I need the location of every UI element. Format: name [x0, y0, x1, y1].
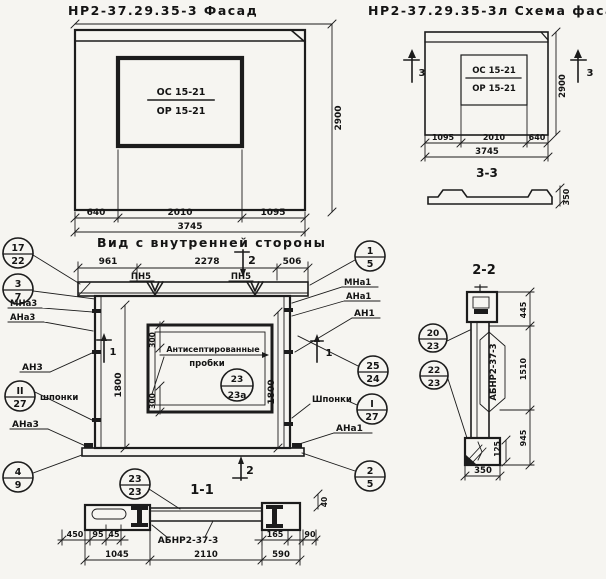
window-mark-top: ОС 15-21 [472, 66, 516, 76]
drawing-sheet: НР2-37.29.35-3 Фасад ОС 15-21 ОР 15-21 6… [0, 0, 606, 579]
callout-bottom: 24 [366, 374, 380, 385]
dim-label: 1800 [114, 372, 124, 397]
loop-label-right: ПН5 [231, 272, 251, 282]
callout-bottom: 22 [11, 256, 24, 267]
dim-label: 3745 [475, 147, 499, 157]
callout-bottom: 27 [13, 399, 26, 410]
callout-bottom: 23 [427, 342, 440, 352]
dim-label: 1510 [519, 357, 528, 380]
dim-label: 2110 [194, 550, 218, 560]
dim-label: 450 [67, 530, 84, 539]
callout-top: 17 [11, 243, 24, 254]
panel-body-outline [95, 296, 290, 448]
section-3-3-profile [428, 190, 552, 204]
section-mark-1-left: 1 [110, 347, 117, 358]
dim-label: 1800 [267, 379, 277, 404]
callout-bottom: 23 [428, 379, 441, 389]
anchor-label-an3: АН3 [22, 363, 43, 373]
inner-view-title: Вид с внутренней стороны [97, 235, 326, 250]
callout-top: I [370, 399, 374, 410]
callout-top: 1 [367, 246, 374, 257]
dim-label: 2900 [558, 74, 568, 98]
section-mark-2-top: 2 [248, 254, 256, 267]
dim-label: 90 [304, 530, 316, 539]
callout-bottom: 23а [228, 391, 247, 401]
section-1-1-title: 1-1 [190, 483, 214, 498]
lifting-loop-section [92, 509, 126, 519]
inner-view: Вид с внутренней стороны 961 2278 506 2 … [3, 235, 388, 492]
dim-label: 2010 [483, 133, 506, 142]
callout-top: 2 [367, 466, 374, 477]
top-channel [467, 292, 497, 322]
scheme-window-opening [461, 55, 527, 105]
dim-label: 590 [272, 550, 290, 560]
dim-label: 165 [267, 530, 284, 539]
dim-label: 2278 [194, 257, 219, 267]
anchor-label-mna3: МНа3 [10, 299, 37, 309]
window-mark-bottom: ОР 15-21 [472, 84, 516, 94]
dim-label: 3745 [177, 222, 202, 232]
facade-title: НР2-37.29.35-3 Фасад [68, 3, 258, 18]
dim-label: 961 [99, 257, 118, 267]
scheme-title: НР2-37.29.35-3л Схема фасада [368, 3, 606, 18]
panel-top-band [78, 282, 308, 296]
keys-label-right: Шпонки [312, 395, 352, 405]
callout-top: 25 [366, 361, 379, 372]
anchor-label-mna1: МНа1 [344, 278, 371, 288]
callout-top: 3 [15, 279, 22, 290]
section-mark-1-right: 1 [326, 348, 333, 359]
callout-bottom: 5 [367, 259, 374, 270]
callout-bottom: 5 [367, 479, 374, 490]
dim-label: 445 [519, 301, 528, 318]
dim-label: 1045 [105, 550, 129, 560]
callout-top: II [16, 386, 23, 397]
section-mark-2-bottom: 2 [246, 464, 254, 477]
dim-label: 640 [529, 133, 546, 142]
callout-top: 22 [428, 366, 441, 376]
callout-top: 20 [427, 329, 440, 339]
ibeam-right [266, 505, 283, 528]
dim-label: 350 [474, 466, 492, 476]
callout-bottom: 9 [15, 480, 22, 491]
beam-mark-label: АБНР2-37-3 [489, 343, 499, 400]
panel-bottom-band [82, 448, 304, 456]
section-2-2: 2-2 АБНР2-37-3 445 1510 945 125 350 20 2… [419, 263, 534, 480]
technical-drawing: НР2-37.29.35-3 Фасад ОС 15-21 ОР 15-21 6… [0, 0, 606, 579]
window-mark-bottom: ОР 15-21 [157, 106, 206, 117]
section-mark-3-right: 3 [587, 68, 594, 79]
dim-label: 95 [92, 530, 104, 539]
dim-label: 640 [87, 208, 106, 218]
callout-top: 23 [128, 474, 141, 485]
dim-label: 45 [108, 530, 120, 539]
window-mark-top: ОС 15-21 [157, 87, 206, 98]
anchor-label-ana1-bottom: АНа1 [336, 424, 363, 434]
dim-ticks [71, 20, 336, 236]
dim-label: 2010 [167, 208, 192, 218]
plugs-label-line2: пробки [189, 358, 225, 369]
facade-view: НР2-37.29.35-3 Фасад ОС 15-21 ОР 15-21 6… [68, 3, 344, 236]
keys-label-left: шпонки [40, 393, 78, 403]
plugs-label-line1: Антисептированные [166, 345, 260, 354]
callout-top: 23 [231, 375, 244, 385]
dim-label: 1095 [432, 133, 455, 142]
section-mark-3-left: 3 [419, 68, 426, 79]
dim-label: 2900 [334, 105, 344, 130]
anchor-label-ana3: АНа3 [10, 313, 35, 323]
dim-label: 300 [148, 332, 157, 348]
callout-bottom: 27 [365, 412, 378, 423]
dim-label: 125 [493, 441, 502, 457]
anchor-label-ana1: АНа1 [346, 292, 371, 302]
callout-top: 4 [15, 467, 22, 478]
section-3-3-title: 3-3 [476, 166, 498, 180]
dim-label: 300 [148, 393, 157, 409]
callout-bottom: 23 [128, 487, 141, 498]
ibeam-left [131, 506, 148, 527]
dim-label: 40 [320, 497, 329, 507]
dim-label: 1095 [260, 208, 285, 218]
dim-label: 506 [283, 257, 302, 267]
section-2-2-title: 2-2 [472, 263, 496, 278]
loop-label-left: ПН5 [131, 272, 151, 282]
scheme-view: НР2-37.29.35-3л Схема фасада ОС 15-21 ОР… [368, 3, 606, 208]
facade-window-opening [118, 58, 242, 146]
anchor-label-an1: АН1 [354, 309, 375, 319]
section-1-1: 23 23 1-1 450 95 45 165 90 40 АБНР2-37-3… [58, 469, 329, 565]
dim-label: 350 [562, 188, 571, 205]
anchor-label-ana3-bottom: АНа3 [12, 420, 39, 430]
dim-label: 945 [519, 429, 528, 446]
